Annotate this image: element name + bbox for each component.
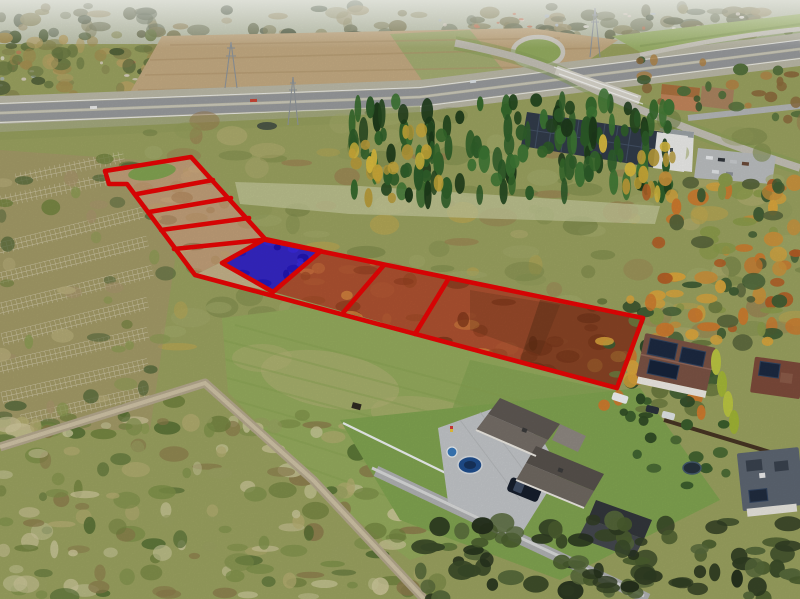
- aerial-photo-svg: [0, 0, 800, 599]
- aerial-photo: [0, 0, 800, 599]
- atmospheric-haze: [0, 0, 800, 48]
- photo-grain: [0, 0, 800, 599]
